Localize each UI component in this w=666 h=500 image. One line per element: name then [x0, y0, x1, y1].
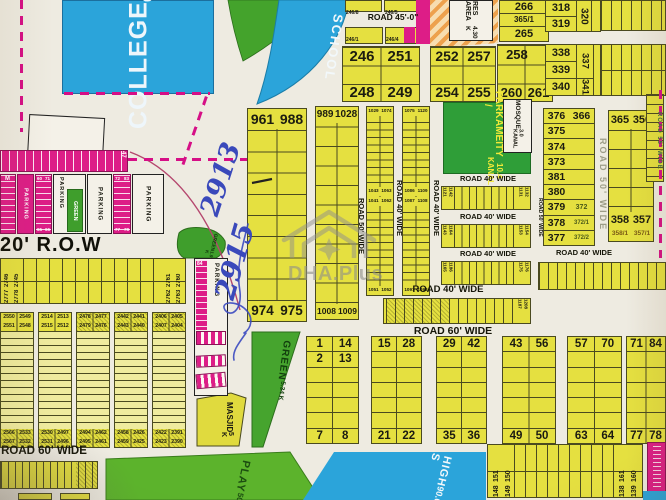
- ink-marks: [0, 0, 666, 500]
- plot-map-photo: COLLEGE 63.67 K SCHOOL ROAD 45'-0" 246/8…: [0, 0, 666, 500]
